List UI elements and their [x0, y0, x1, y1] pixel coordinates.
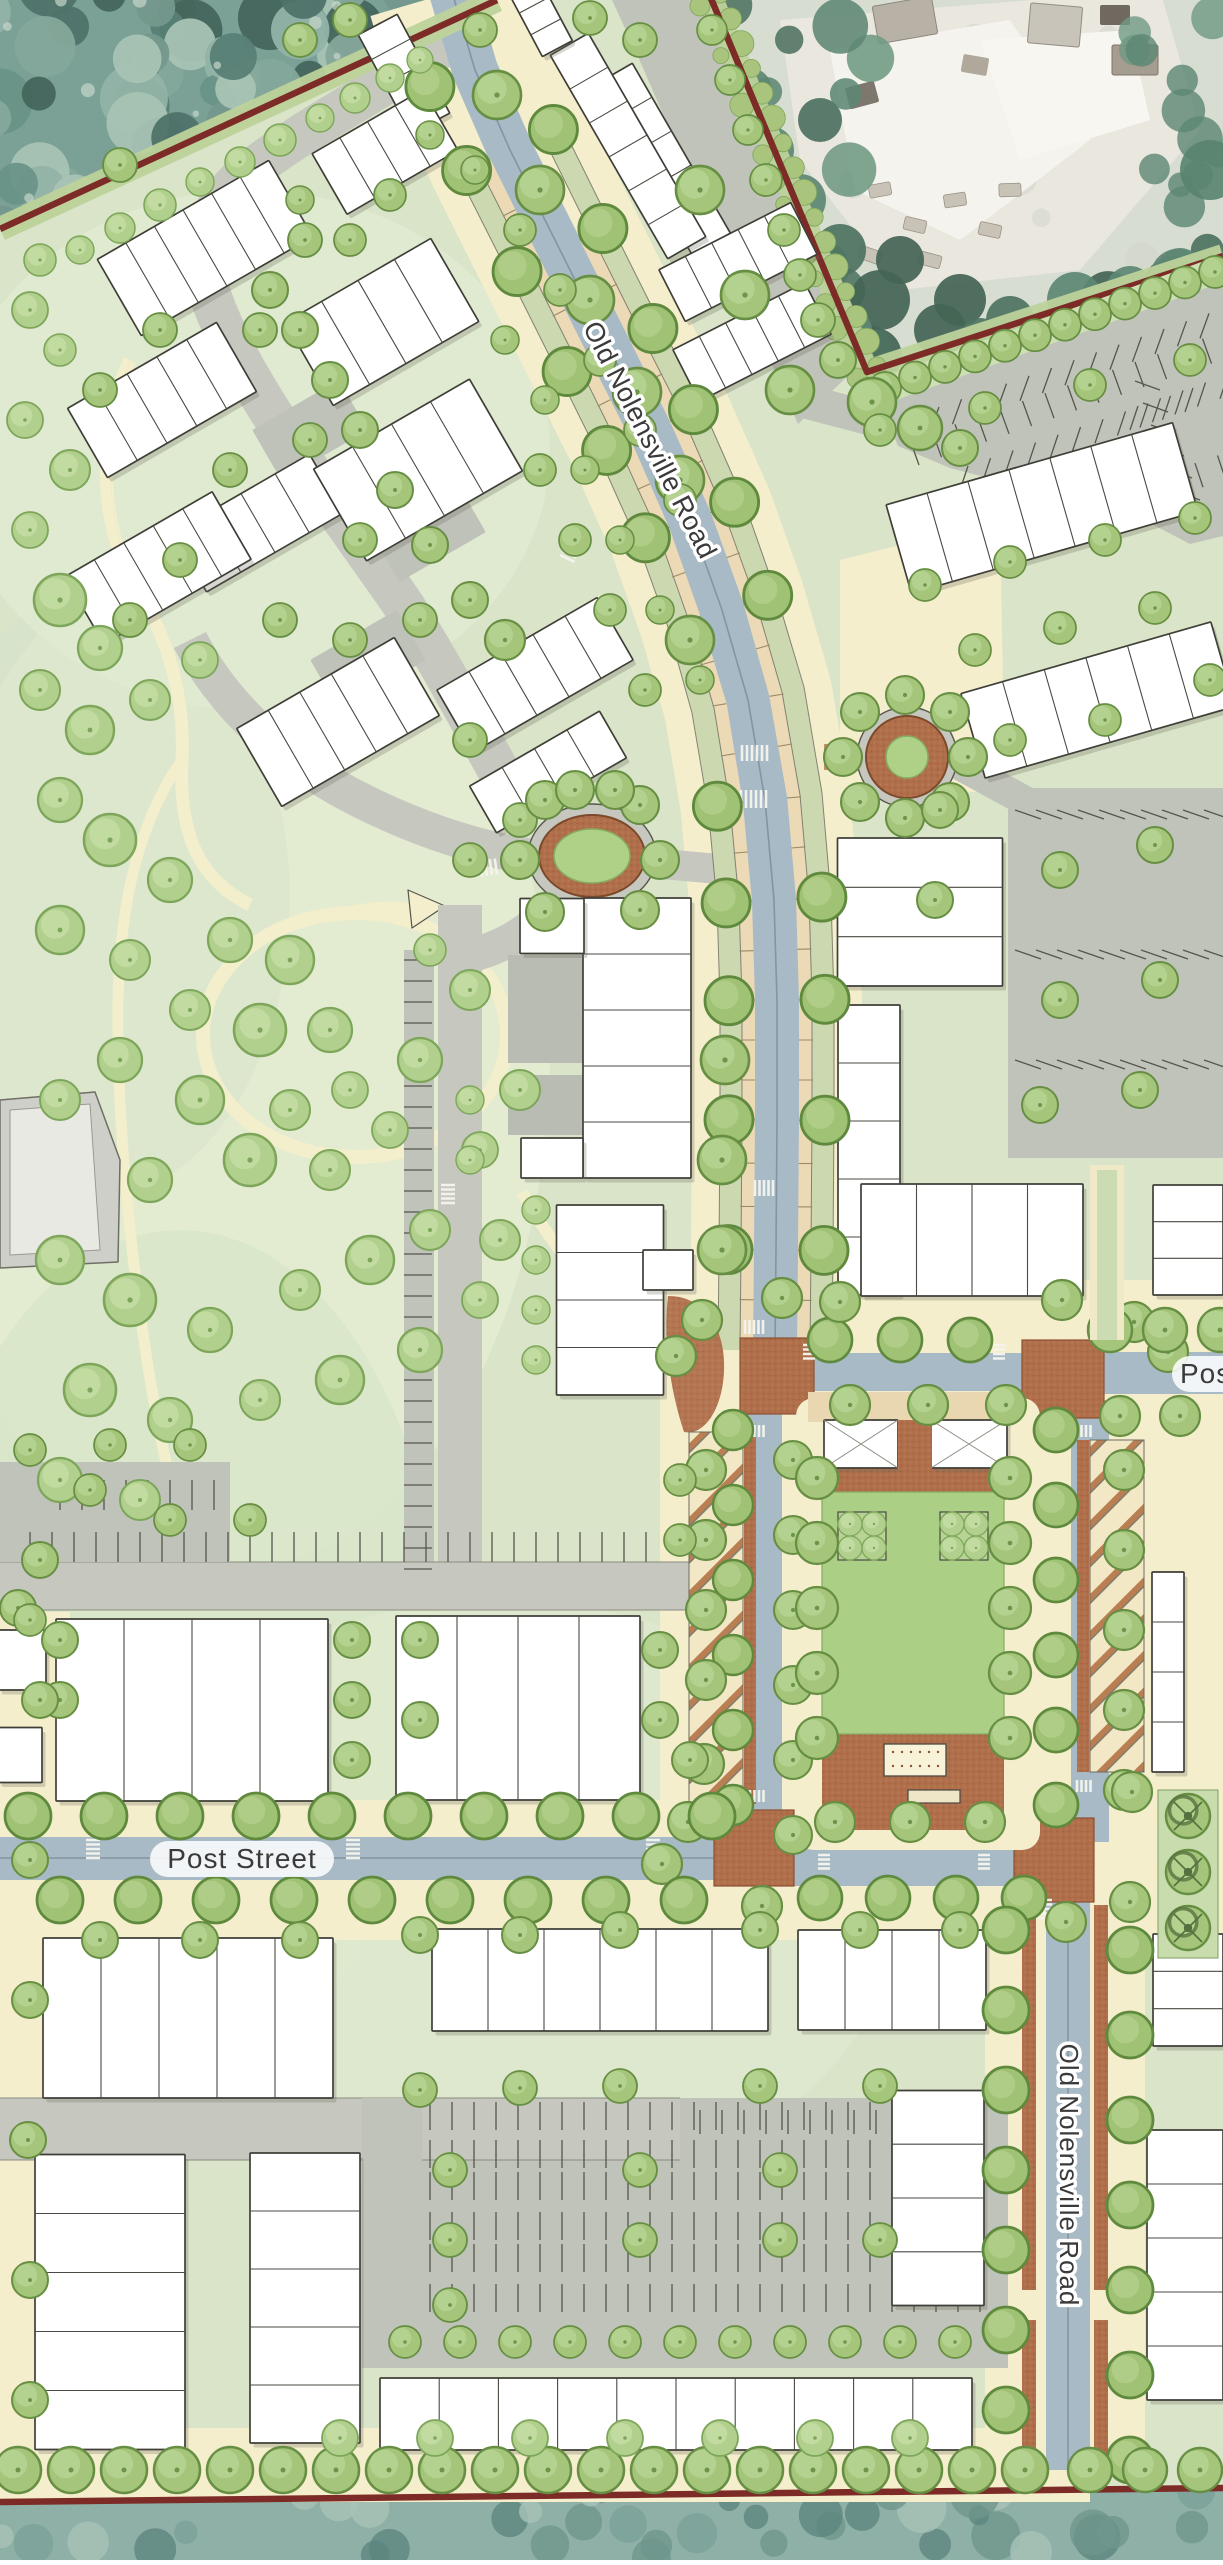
svg-text:Pos: Pos: [1180, 1358, 1223, 1389]
svg-text:Old Nolensville Road: Old Nolensville Road: [1054, 2044, 1084, 2307]
svg-text:Post Street: Post Street: [167, 1843, 317, 1874]
